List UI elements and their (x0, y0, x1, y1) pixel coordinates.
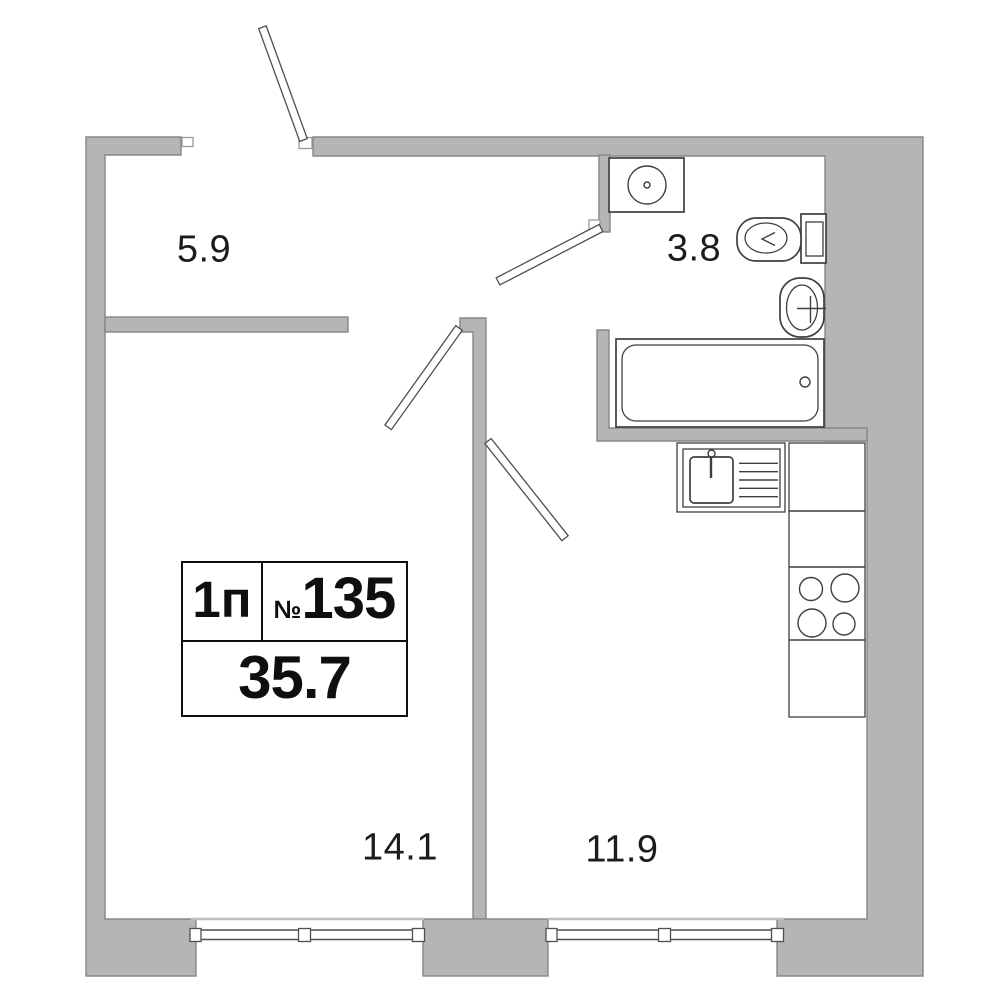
floor-plan: 5.9 3.8 14.1 11.9 1п №135 35.7 (0, 0, 1000, 1000)
unit-info-top-row: 1п №135 (183, 563, 406, 642)
bathtub-inner (622, 345, 818, 421)
kitchen-window (546, 919, 784, 942)
room-label-living-room: 14.1 (362, 827, 438, 870)
bathtub-icon (616, 339, 824, 427)
room-label-kitchen: 11.9 (585, 829, 658, 872)
window-end-cap (546, 929, 557, 942)
counter-and-stove-icon (789, 443, 865, 717)
living-room-door-leaf (385, 326, 462, 430)
unit-info-box: 1п №135 35.7 (181, 561, 408, 717)
doors (182, 26, 603, 541)
window-end-cap (772, 929, 784, 942)
room-label-hallway: 5.9 (177, 229, 231, 272)
living-room-window (190, 919, 425, 942)
window-mullion (659, 929, 671, 942)
window-end-cap (190, 929, 201, 942)
unit-area-label: 35.7 (183, 642, 406, 715)
window-mullion (299, 929, 311, 942)
washbasin-icon (780, 278, 826, 337)
washing-machine-icon (609, 158, 684, 212)
floor-plan-drawing (0, 0, 1000, 1000)
room-label-bathroom: 3.8 (667, 228, 721, 271)
window-end-cap (413, 929, 425, 942)
unit-number-value: 135 (302, 566, 396, 631)
toilet-icon (737, 214, 826, 263)
unit-number-symbol: № (274, 596, 302, 624)
entrance-door-leaf (259, 26, 308, 141)
wall-hallway-bottom (105, 317, 348, 332)
bathroom-door-leaf (496, 224, 603, 284)
wall-central (460, 318, 486, 919)
kitchen-sink-icon (677, 443, 785, 512)
unit-number-label: №135 (263, 563, 406, 640)
entrance-frame-cap (182, 138, 193, 147)
counter-run (789, 443, 865, 717)
wall-bottom-middle (423, 919, 548, 976)
toilet-bowl-inner (745, 223, 787, 253)
kitchen-door-leaf (485, 439, 568, 541)
unit-type-label: 1п (183, 563, 263, 640)
toilet-tank-lid (806, 222, 823, 256)
washbasin-inner (787, 285, 818, 330)
